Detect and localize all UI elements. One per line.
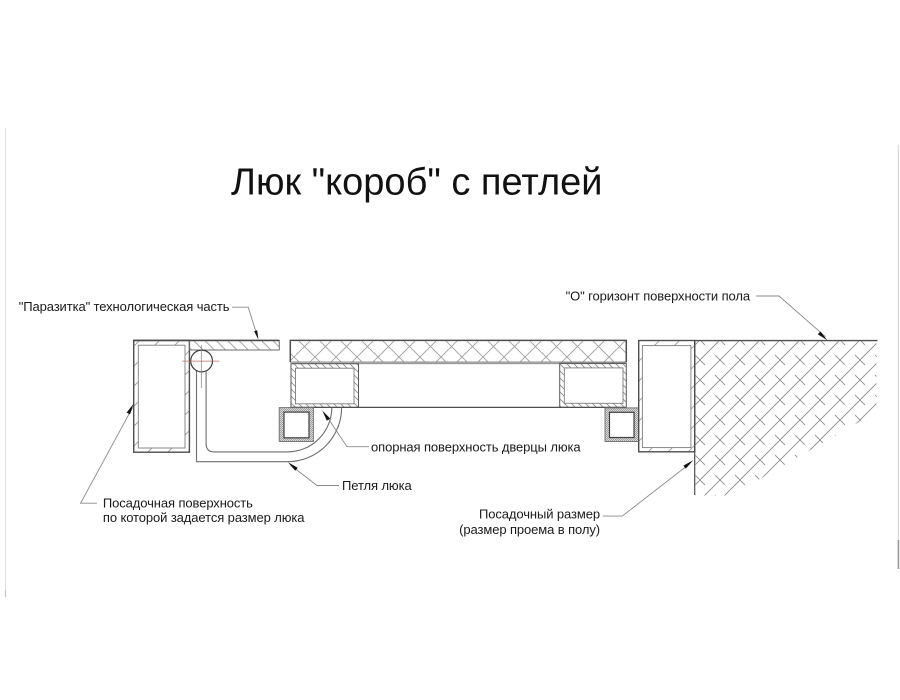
svg-text:по которой задается размер люк: по которой задается размер люка [103,510,305,525]
svg-text:Посадочный размер: Посадочный размер [479,507,600,522]
svg-text:"О" горизонт поверхности пола: "О" горизонт поверхности пола [566,288,751,303]
svg-text:"Паразитка" технологическая ча: "Паразитка" технологическая часть [19,299,230,314]
svg-text:Посадочная поверхность: Посадочная поверхность [103,495,253,510]
svg-text:(размер проема в полу): (размер проема в полу) [459,522,600,537]
svg-text:Петля люка: Петля люка [342,478,412,493]
svg-text:Люк "короб" с петлей: Люк "короб" с петлей [231,162,602,204]
svg-text:опорная поверхность дверцы люк: опорная поверхность дверцы люка [371,440,581,455]
